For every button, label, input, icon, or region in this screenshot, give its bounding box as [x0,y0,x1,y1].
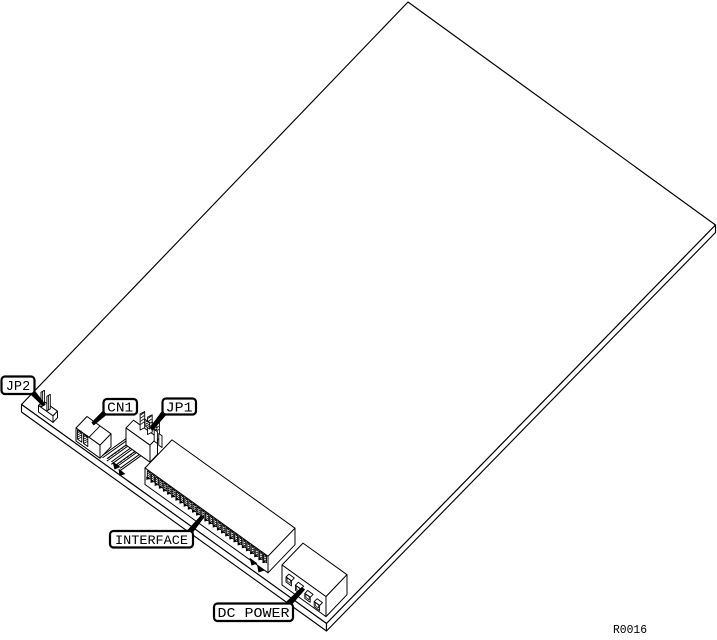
svg-text:JP2: JP2 [6,380,31,395]
svg-text:CN1: CN1 [107,402,133,417]
svg-text:INTERFACE: INTERFACE [115,533,188,548]
svg-text:DC POWER: DC POWER [218,607,290,622]
svg-text:JP1: JP1 [166,401,193,416]
svg-text:R0016: R0016 [613,623,647,637]
